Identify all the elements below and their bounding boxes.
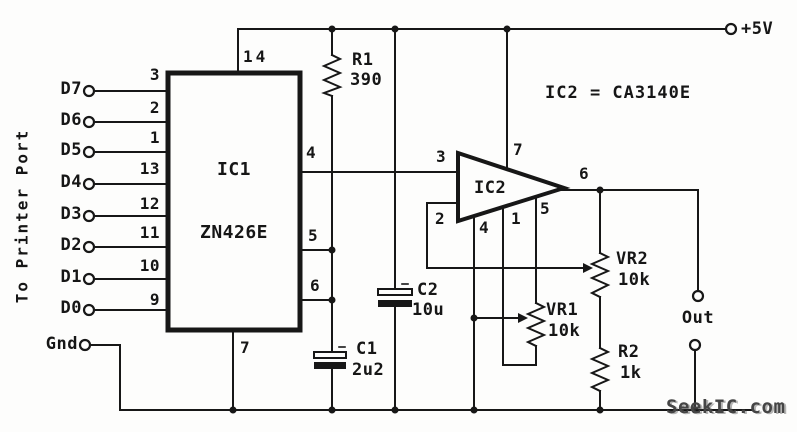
ic2-pin7-label: 7 bbox=[513, 142, 523, 159]
vr1-potentiometer-symbol bbox=[528, 303, 544, 346]
ic1-pin11-label: 11 bbox=[118, 225, 160, 242]
c1-capacitor-symbol bbox=[314, 347, 346, 369]
d6-terminal bbox=[84, 117, 94, 127]
ic2-pin3-label: 3 bbox=[436, 149, 446, 166]
ic1-pin4-label: 4 bbox=[306, 145, 316, 162]
out-label: Out bbox=[676, 310, 720, 328]
d6-label: D6 bbox=[42, 112, 82, 130]
c1-value: 2u2 bbox=[352, 362, 384, 380]
ic1-pin12-label: 12 bbox=[118, 196, 160, 213]
vr1-value: 10k bbox=[548, 323, 580, 341]
ic1-designator: IC1 bbox=[168, 161, 300, 180]
r2-resistor-symbol bbox=[592, 348, 608, 391]
ic1-pin7-label: 7 bbox=[240, 340, 250, 357]
ic2-pin6-label: 6 bbox=[579, 166, 589, 183]
r2-value: 1k bbox=[620, 365, 641, 383]
ic1-body bbox=[168, 73, 300, 330]
d4-label: D4 bbox=[42, 174, 82, 192]
d1-label: D1 bbox=[42, 269, 82, 287]
vr2-ref: VR2 bbox=[616, 251, 648, 269]
d7-label: D7 bbox=[42, 81, 82, 99]
d0-label: D0 bbox=[42, 300, 82, 318]
ic2-pin2-label: 2 bbox=[435, 211, 445, 228]
circuit-drawing bbox=[0, 0, 797, 432]
ic2-pin4-label: 4 bbox=[479, 220, 489, 237]
c2-ref: C2 bbox=[417, 282, 438, 300]
ic1-pin10-label: 10 bbox=[118, 258, 160, 275]
c2-value: 10u bbox=[412, 302, 444, 320]
schematic-canvas: To Printer Port D7 D6 D5 D4 D3 D2 D1 D0 … bbox=[0, 0, 797, 432]
ic2-pin1-label: 1 bbox=[511, 211, 521, 228]
ic1-pin2-label: 2 bbox=[118, 100, 160, 117]
ic1-pin9-label: 9 bbox=[118, 292, 160, 309]
ic1-part-number: ZN426E bbox=[168, 224, 300, 243]
d5-label: D5 bbox=[42, 142, 82, 160]
out-terminal-lower bbox=[690, 340, 700, 350]
vr2-potentiometer-symbol bbox=[592, 253, 608, 297]
r1-value: 390 bbox=[350, 72, 382, 90]
vr1-wiper-arrow bbox=[518, 313, 528, 323]
ic2-pin5-label: 5 bbox=[540, 201, 550, 218]
d2-label: D2 bbox=[42, 237, 82, 255]
d3-label: D3 bbox=[42, 206, 82, 224]
ic1-pin13-label: 13 bbox=[118, 161, 160, 178]
ic1-pin5-label: 5 bbox=[308, 228, 318, 245]
gnd-terminal bbox=[80, 340, 90, 350]
d1-terminal bbox=[84, 274, 94, 284]
ic2-note: IC2 = CA3140E bbox=[545, 85, 691, 103]
d0-terminal bbox=[84, 305, 94, 315]
ic1-pin3-label: 3 bbox=[118, 67, 160, 84]
ic2-designator: IC2 bbox=[474, 180, 506, 198]
r1-resistor-symbol bbox=[324, 55, 340, 96]
out-terminal-upper bbox=[693, 291, 703, 301]
vr1-ref: VR1 bbox=[546, 302, 578, 320]
ic1-pin1-label: 1 bbox=[118, 130, 160, 147]
printer-port-label: To Printer Port bbox=[15, 129, 32, 304]
supply-terminal bbox=[726, 24, 736, 34]
supply-label: +5V bbox=[741, 21, 773, 39]
d5-terminal bbox=[84, 147, 94, 157]
d2-terminal bbox=[84, 242, 94, 252]
gnd-label: Gnd bbox=[36, 336, 78, 354]
ic1-pin6-label: 6 bbox=[310, 278, 320, 295]
r2-ref: R2 bbox=[618, 344, 639, 362]
d4-terminal bbox=[84, 179, 94, 189]
ic1-pin14-label: 14 bbox=[243, 49, 268, 66]
vr2-value: 10k bbox=[618, 272, 650, 290]
c1-ref: C1 bbox=[356, 341, 377, 359]
r1-ref: R1 bbox=[352, 52, 373, 70]
watermark-text: SeekIC.com bbox=[666, 398, 785, 418]
d3-terminal bbox=[84, 211, 94, 221]
d7-terminal bbox=[84, 86, 94, 96]
